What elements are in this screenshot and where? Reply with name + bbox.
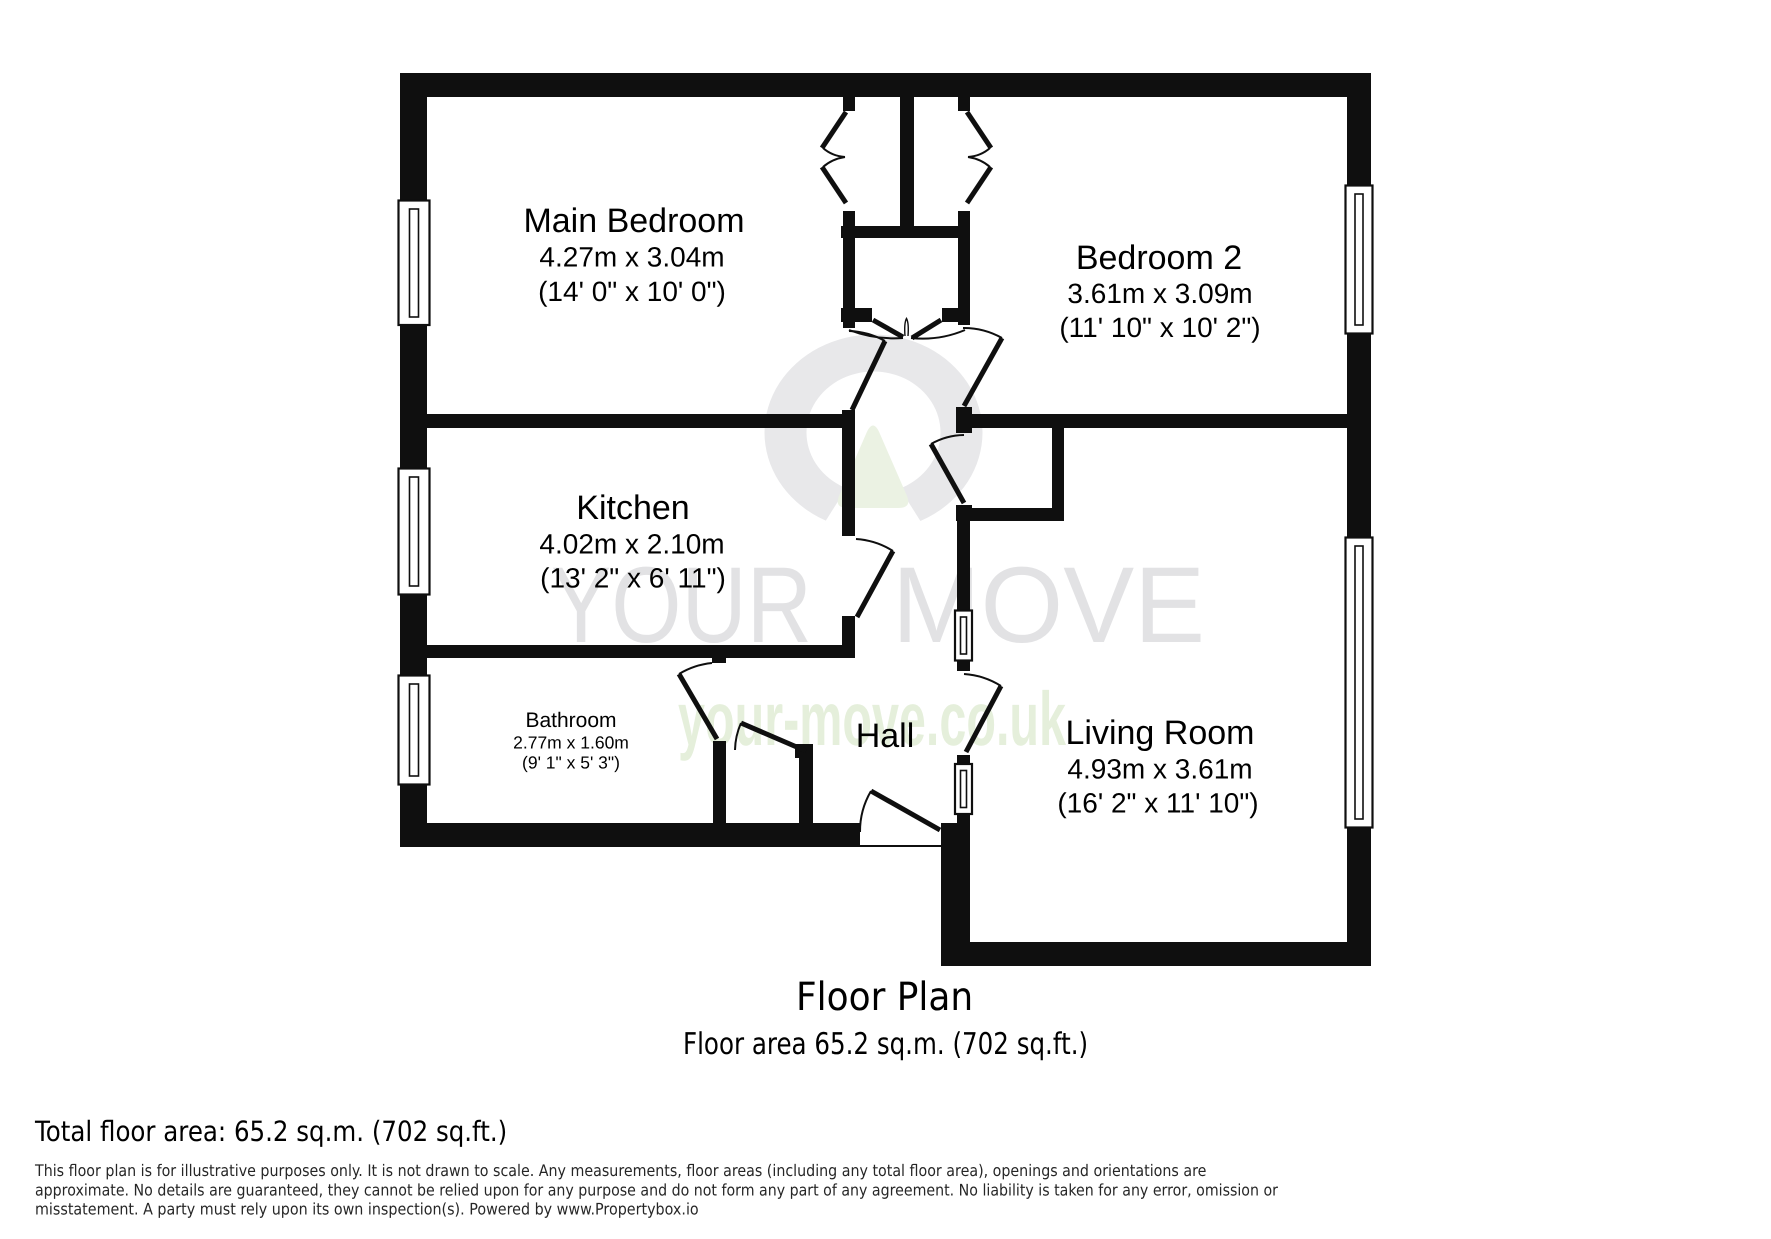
svg-text:Kitchen: Kitchen <box>576 489 689 527</box>
svg-text:Total floor area: 65.2 sq.m. (: Total floor area: 65.2 sq.m. (702 sq.ft.… <box>34 1115 507 1148</box>
svg-text:Bedroom 2: Bedroom 2 <box>1076 239 1242 277</box>
svg-text:4.93m x 3.61m: 4.93m x 3.61m <box>1067 754 1252 785</box>
svg-text:Living Room: Living Room <box>1066 714 1255 752</box>
svg-text:2.77m x 1.60m: 2.77m x 1.60m <box>513 733 629 753</box>
svg-text:This floor plan is for illustr: This floor plan is for illustrative purp… <box>34 1161 1206 1180</box>
svg-text:Floor area 65.2 sq.m. (702 sq.: Floor area 65.2 sq.m. (702 sq.ft.) <box>683 1027 1088 1062</box>
svg-text:(11' 10" x 10' 2"): (11' 10" x 10' 2") <box>1059 312 1260 343</box>
svg-text:MOVE: MOVE <box>892 544 1205 665</box>
svg-text:misstatement. A party must rel: misstatement. A party must rely upon its… <box>35 1200 699 1219</box>
svg-text:(9' 1" x 5' 3"): (9' 1" x 5' 3") <box>522 753 620 773</box>
svg-text:4.02m x 2.10m: 4.02m x 2.10m <box>539 529 724 560</box>
svg-text:Floor Plan: Floor Plan <box>796 975 973 1020</box>
svg-text:Bathroom: Bathroom <box>525 709 616 732</box>
svg-text:Hall: Hall <box>856 717 915 755</box>
svg-text:(13' 2" x 6' 11"): (13' 2" x 6' 11") <box>540 563 726 594</box>
svg-text:Main Bedroom: Main Bedroom <box>523 202 744 240</box>
svg-text:(14' 0" x 10' 0"): (14' 0" x 10' 0") <box>538 276 726 307</box>
svg-text:(16' 2" x 11' 10"): (16' 2" x 11' 10") <box>1057 788 1258 819</box>
svg-text:4.27m x 3.04m: 4.27m x 3.04m <box>539 242 724 273</box>
svg-text:approximate. No details are gu: approximate. No details are guaranteed, … <box>35 1180 1278 1199</box>
svg-text:3.61m x 3.09m: 3.61m x 3.09m <box>1067 278 1252 309</box>
